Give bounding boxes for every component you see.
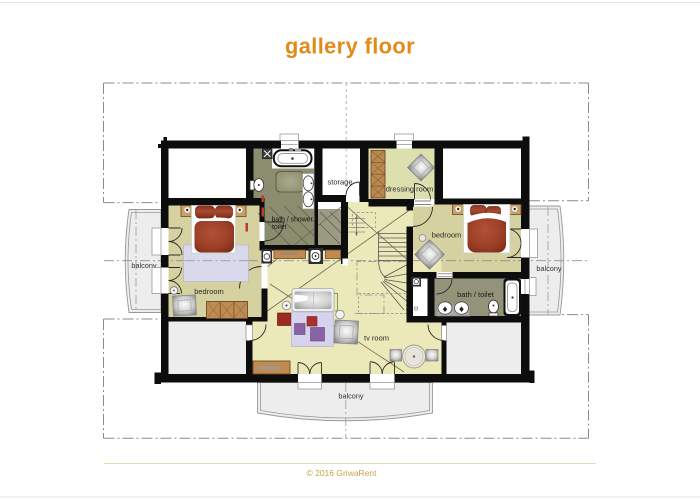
svg-text:bath / toilet: bath / toilet xyxy=(457,290,495,299)
svg-text:gallery floor: gallery floor xyxy=(285,34,415,59)
svg-text:bedroom: bedroom xyxy=(194,287,224,296)
svg-text:dressing room: dressing room xyxy=(386,185,434,194)
svg-text:storage: storage xyxy=(327,178,352,187)
svg-text:bedroom: bedroom xyxy=(432,231,462,240)
svg-text:toilet: toilet xyxy=(272,223,287,231)
svg-text:balcony: balcony xyxy=(338,392,364,401)
svg-text:tv room: tv room xyxy=(364,334,389,343)
svg-text:© 2016 GriwaRent: © 2016 GriwaRent xyxy=(306,468,377,478)
svg-text:balcony: balcony xyxy=(536,264,562,273)
